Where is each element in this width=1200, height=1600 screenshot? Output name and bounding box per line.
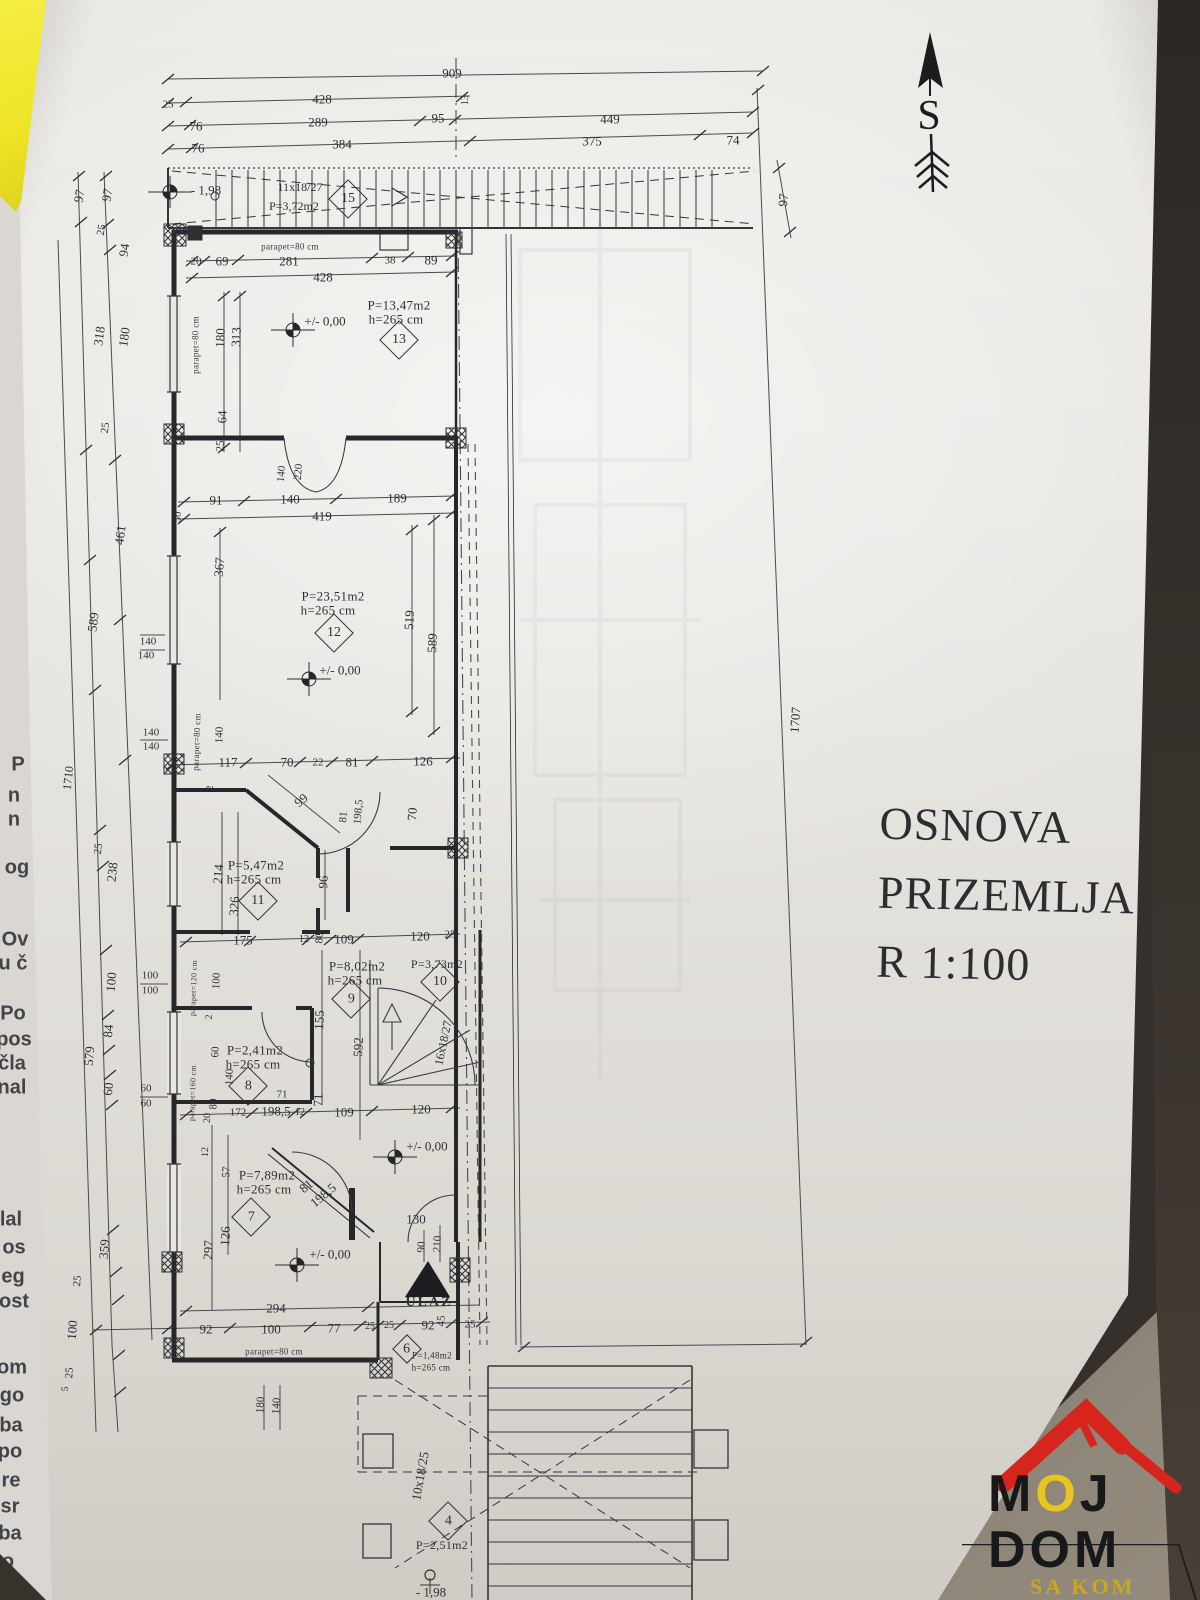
dim-label: 126: [218, 1226, 232, 1246]
dim-label: 140: [143, 728, 160, 739]
dim-label: h=265 cm: [237, 1183, 292, 1196]
dim-label: 25: [100, 422, 112, 434]
dim-label: 140: [271, 1397, 283, 1414]
logo-subtext: SA KOM: [1030, 1574, 1135, 1600]
dim-label: 12: [201, 1147, 211, 1157]
dim-label: 120: [411, 1103, 431, 1116]
dim-label: 592: [351, 1037, 365, 1057]
dim-label: parapet=80 cm: [261, 243, 319, 252]
dim-label: P=23,51m2: [301, 590, 364, 603]
text-fragment: Ov: [2, 929, 29, 952]
dim-label: 25: [445, 930, 456, 941]
dim-label: 313: [229, 327, 243, 347]
dim-label: 238: [105, 862, 120, 883]
dim-label: 70: [281, 756, 294, 769]
dim-label: 60: [141, 1099, 152, 1110]
dim-label: 1710: [61, 765, 75, 790]
dim-label: 126: [413, 755, 433, 768]
dim-label: 2: [206, 785, 216, 790]
text-fragment: u č: [0, 953, 27, 976]
dim-label: P=2,41m2: [227, 1044, 283, 1057]
dim-label: 109: [334, 933, 354, 946]
dim-label: +/- 0,00: [304, 315, 345, 328]
dim-label: 95: [432, 112, 445, 125]
dim-label: 38: [385, 256, 396, 267]
dim-label: 89: [425, 254, 438, 267]
text-fragment: Po: [0, 1003, 26, 1026]
dim-label: 80: [314, 932, 326, 944]
dim-label: ULAZ: [406, 1296, 453, 1310]
dim-label: 84: [101, 1024, 115, 1038]
dim-label: 25: [64, 1367, 76, 1379]
dim-label: 180: [116, 326, 132, 347]
dim-label: parapet=80 cm: [192, 316, 201, 374]
level-marker-icon: [286, 323, 301, 338]
dim-label: 589: [85, 612, 100, 633]
north-letter: S: [917, 92, 940, 140]
title-line-3: R 1:100: [876, 927, 1177, 1003]
dim-label: 100: [65, 1320, 79, 1340]
text-fragment: P: [11, 754, 24, 777]
dim-label: 70: [405, 807, 419, 821]
dim-label: 589: [425, 633, 439, 653]
dim-label: 109: [334, 1106, 354, 1119]
dim-label: 81: [338, 811, 350, 823]
dim-label: 30: [172, 511, 184, 523]
dim-label: 25: [365, 1322, 375, 1332]
dim-label: 90: [416, 1241, 427, 1252]
dim-label: +/- 0,00: [319, 664, 360, 677]
dim-label: 100: [142, 971, 159, 982]
dim-label: P=5,47m2: [228, 859, 284, 872]
title-line-1: OSNOVA: [879, 789, 1180, 865]
dim-label: 419: [312, 510, 332, 523]
dim-label: 76: [192, 142, 205, 155]
dim-label: 428: [312, 93, 332, 106]
dim-label: 25: [163, 100, 174, 111]
dim-label: 294: [266, 1302, 286, 1315]
dim-label: 71: [277, 1090, 288, 1101]
dim-label: 11x18/27: [278, 181, 323, 193]
text-fragment: ba: [0, 1523, 22, 1546]
logo-word-moj: MOJ: [988, 1464, 1113, 1524]
dim-label: 220: [293, 463, 305, 480]
text-fragment: po: [0, 1441, 22, 1464]
logo-letter-m: M: [988, 1465, 1035, 1523]
dim-label: h=265 cm: [301, 604, 356, 617]
dim-label: 140: [140, 637, 157, 648]
dim-label: 100: [104, 972, 119, 993]
text-fragment: om: [0, 1357, 27, 1380]
dim-label: 64: [215, 410, 228, 423]
dim-label: 97: [776, 193, 790, 207]
dim-label: 12: [295, 1108, 305, 1118]
text-fragment: og: [5, 857, 29, 880]
dim-label: 1707: [788, 707, 803, 734]
level-marker-icon: [302, 672, 317, 687]
dim-label: P=8,02m2: [329, 960, 385, 973]
text-fragment: sr: [1, 1496, 20, 1519]
dim-label: 2: [205, 1014, 215, 1019]
level-marker-icon: [388, 1150, 403, 1165]
dim-label: 428: [313, 271, 333, 284]
dim-label: 449: [600, 113, 620, 126]
dim-label: 77: [328, 1322, 341, 1335]
dim-label: 80: [208, 1098, 219, 1109]
dim-label: 140: [138, 651, 155, 662]
dim-label: 198,5: [352, 799, 365, 825]
text-fragment: čla: [0, 1053, 26, 1076]
text-fragment: ba: [0, 1415, 23, 1438]
dim-label: 289: [308, 116, 328, 129]
dim-label: 120: [410, 930, 430, 943]
title-line-2: PRIZEMLJA: [877, 858, 1178, 934]
dim-label: 375: [582, 135, 602, 148]
logo-letter-o: O: [1035, 1465, 1079, 1523]
dim-label: 384: [332, 138, 352, 151]
mojdom-logo: MOJ DOM SA KOM: [962, 1388, 1200, 1600]
level-marker-icon: [163, 185, 178, 200]
dim-label: 97: [99, 187, 114, 202]
dim-label: 71: [311, 1093, 325, 1107]
dim-label: P=1,48m2: [412, 1352, 452, 1361]
title-block: OSNOVA PRIZEMLJA R 1:100: [876, 789, 1181, 1003]
dim-label: 172: [230, 1108, 247, 1119]
text-fragment: os: [2, 1237, 25, 1260]
text-fragment: go: [0, 1385, 24, 1408]
dim-label: 74: [727, 134, 740, 147]
logo-letter-j: J: [1080, 1465, 1113, 1523]
dim-label: 76: [190, 120, 203, 133]
dim-label: 117: [218, 756, 237, 769]
floor-plan-sheet: 90925428137628995449763843757497- 1,9811…: [0, 0, 1200, 1600]
logo-word-dom: DOM: [988, 1520, 1121, 1580]
dim-label: 60: [101, 1082, 115, 1096]
text-fragment: n: [8, 785, 20, 808]
text-fragment: lal: [0, 1209, 22, 1232]
dim-label: P=2,51m2: [416, 1539, 468, 1551]
dim-label: P=7,89m2: [239, 1169, 295, 1182]
dim-label: +/- 0,00: [309, 1248, 350, 1261]
text-fragment: n: [8, 809, 20, 832]
dim-label: 318: [91, 325, 107, 346]
dim-label: 198,5: [261, 1105, 290, 1118]
dim-label: 100: [211, 972, 223, 989]
dim-label: 25: [465, 1320, 476, 1331]
dim-label: 20: [203, 1113, 213, 1123]
dim-label: 359: [97, 1239, 112, 1260]
dim-label: 25: [93, 843, 105, 855]
north-arrow: S: [893, 26, 965, 194]
text-fragment: pos: [0, 1029, 32, 1052]
level-marker-icon: [290, 1258, 305, 1273]
dim-label: 91: [210, 494, 223, 507]
dim-label: 140: [143, 742, 160, 753]
text-fragment: nal: [0, 1077, 26, 1100]
dim-label: 94: [117, 243, 132, 258]
dim-label: 130: [406, 1213, 426, 1226]
door-arcs: [262, 438, 455, 1242]
axis-lines: [456, 58, 487, 1600]
dim-label: 175: [233, 934, 253, 947]
dim-label: 579: [82, 1046, 97, 1067]
dim-label: +/- 0,00: [406, 1140, 447, 1153]
dim-label: 189: [387, 492, 407, 505]
dim-label: 25: [96, 224, 109, 237]
dim-label: 92: [200, 1323, 213, 1336]
dim-label: 25: [215, 440, 226, 451]
dim-label: 461: [112, 525, 127, 546]
dim-label: 81: [346, 756, 359, 769]
dim-label: 96: [316, 875, 330, 889]
dim-label: 13: [461, 95, 471, 105]
dim-label: 5: [61, 1386, 71, 1392]
photo-of-floor-plan: { "title_block": {"lines": ["OSNOVA", "P…: [0, 0, 1200, 1600]
dim-label: 210: [432, 1236, 444, 1253]
dim-label: P=13,47m2: [367, 299, 430, 312]
dim-label: 180: [255, 1396, 267, 1413]
dim-label: 60: [141, 1084, 152, 1095]
dim-label: 60: [210, 1046, 221, 1057]
dim-label: 367: [212, 557, 226, 577]
dim-label: 25: [384, 1321, 394, 1331]
text-fragment: ost: [0, 1291, 29, 1314]
dim-label: 92: [422, 1319, 435, 1332]
dim-label: 12: [299, 935, 309, 945]
text-fragment: re: [2, 1470, 21, 1493]
dim-label: 140: [276, 465, 288, 482]
dim-label: h=265 cm: [412, 1364, 451, 1373]
entrance-arrow: [405, 1261, 450, 1297]
text-fragment: eg: [1, 1266, 24, 1289]
dim-label: 214: [211, 864, 225, 884]
dim-label: parapet=80 cm: [245, 1348, 303, 1357]
dim-label: 519: [402, 610, 416, 630]
dim-label: 140: [214, 727, 226, 744]
dim-label: - 1,98: [191, 184, 221, 197]
dim-label: 281: [279, 255, 299, 268]
dim-label: 140: [280, 493, 300, 506]
dim-label: 45: [436, 1315, 447, 1326]
dim-label: - 1,98: [416, 1586, 446, 1599]
dim-label: 155: [312, 1010, 326, 1030]
dim-label: 20: [191, 257, 202, 268]
dim-label: P=3,72m2: [269, 200, 319, 212]
dim-label: 100: [142, 986, 159, 997]
dimension-ticks: [73, 66, 812, 1397]
dim-label: 297: [201, 1240, 215, 1260]
dim-label: 25: [72, 1275, 84, 1287]
dim-label: 909: [442, 67, 462, 80]
dim-label: 69: [216, 255, 229, 268]
dim-label: 22: [313, 758, 324, 769]
dim-label: 97: [71, 188, 86, 203]
page-bleed-through: [520, 220, 700, 1080]
dim-label: 100: [261, 1323, 281, 1336]
dim-label: 180: [213, 328, 227, 348]
dim-label: 57: [221, 1166, 232, 1177]
